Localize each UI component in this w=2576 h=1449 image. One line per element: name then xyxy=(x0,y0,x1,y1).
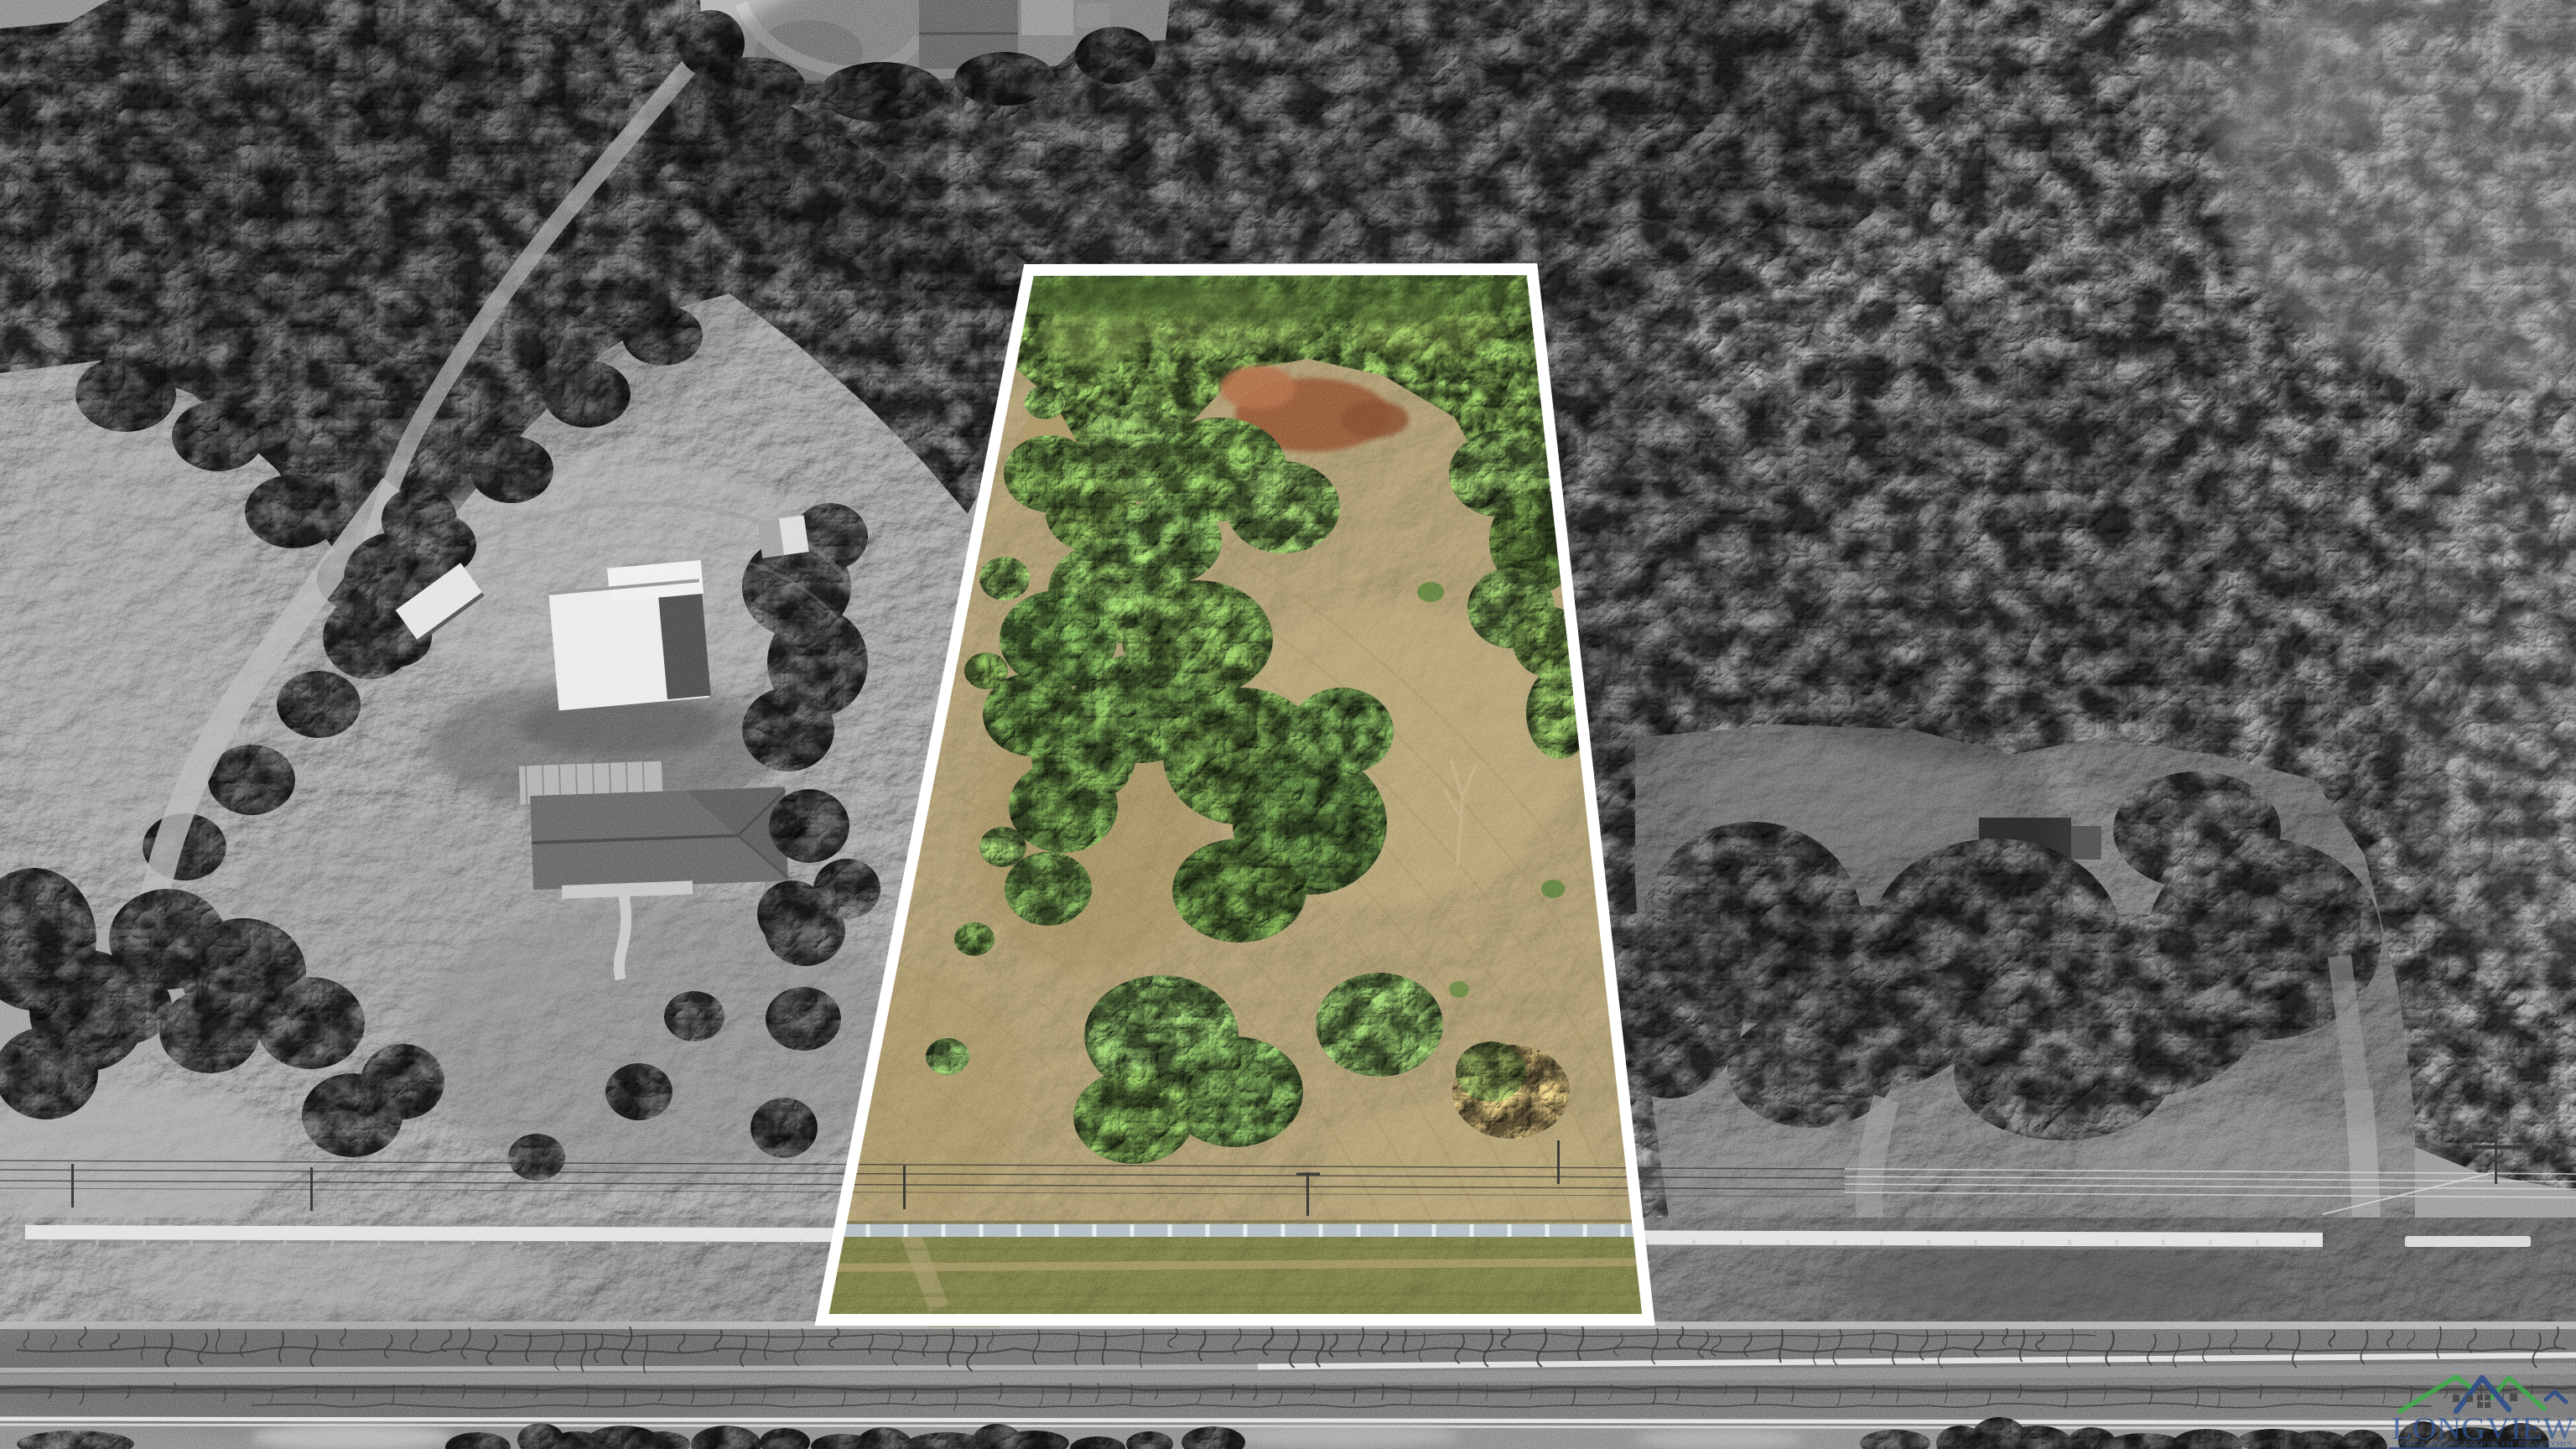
svg-text:AREA ASSOCIATION OF REALTORS: AREA ASSOCIATION OF REALTORS xyxy=(2397,1440,2573,1448)
